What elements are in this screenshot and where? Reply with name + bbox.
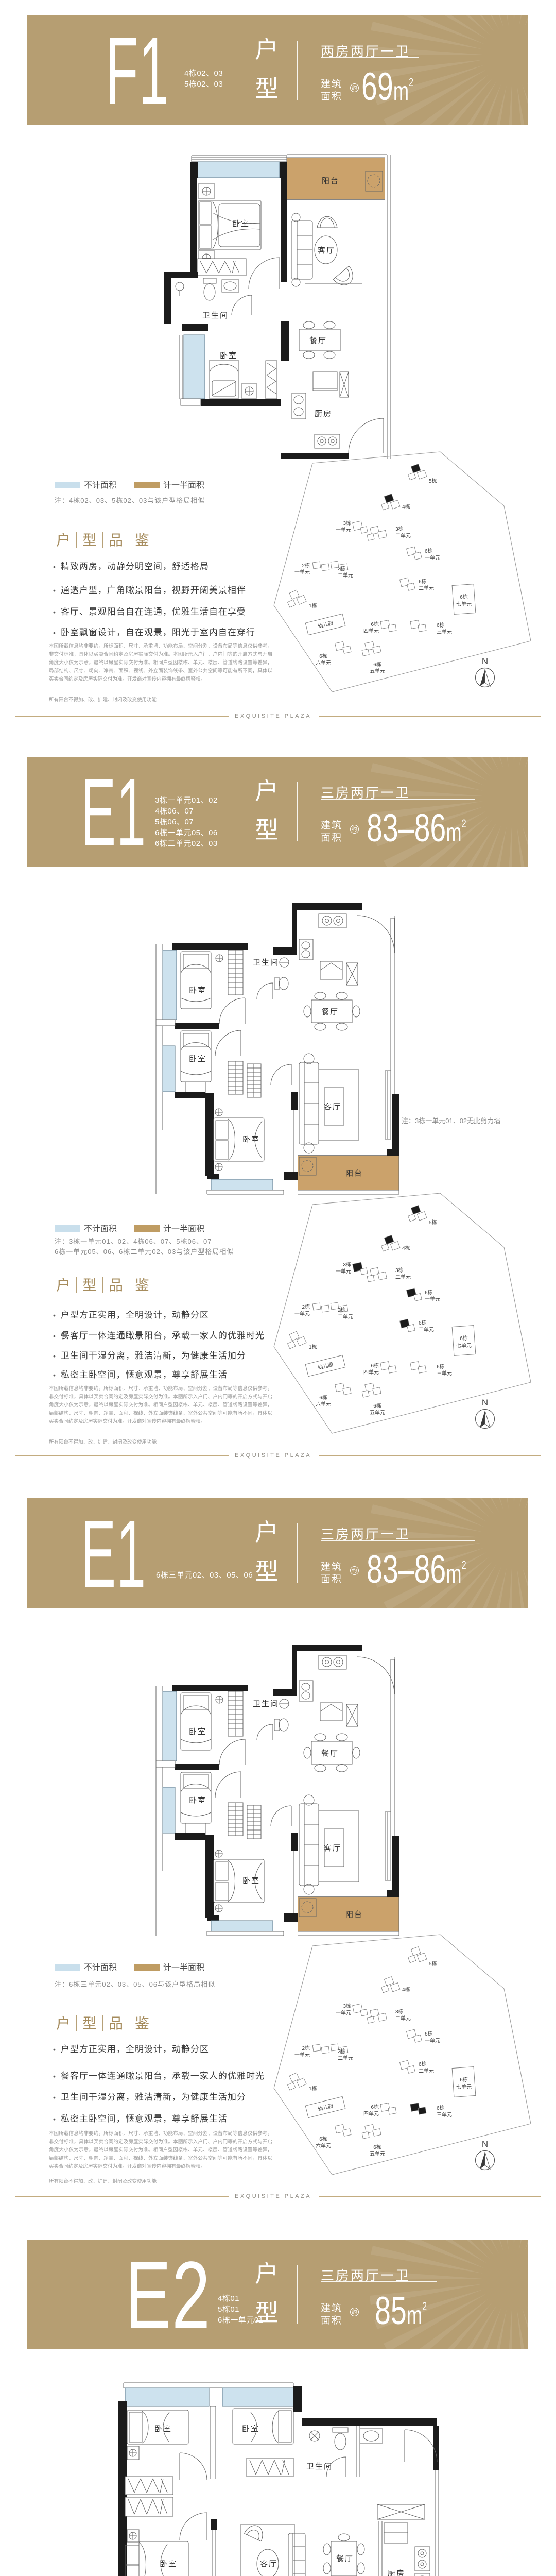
- svg-text:4栋: 4栋: [402, 1986, 410, 1993]
- svg-text:四单元: 四单元: [363, 1369, 379, 1376]
- svg-text:一单元: 一单元: [425, 2038, 440, 2044]
- svg-text:5栋: 5栋: [429, 478, 437, 484]
- svg-text:6栋: 6栋: [371, 621, 379, 628]
- svg-text:卫生间: 卫生间: [306, 2462, 333, 2471]
- svg-text:七单元: 七单元: [456, 601, 472, 607]
- svg-text:厨房: 厨房: [315, 410, 332, 418]
- svg-text:3栋: 3栋: [343, 2003, 351, 2009]
- svg-text:卧室: 卧室: [160, 2560, 177, 2568]
- svg-text:3栋: 3栋: [343, 1261, 351, 1268]
- svg-text:餐厅: 餐厅: [321, 1749, 339, 1758]
- svg-text:六单元: 六单元: [316, 660, 331, 666]
- svg-text:四单元: 四单元: [363, 2111, 379, 2117]
- svg-text:3栋: 3栋: [395, 1267, 404, 1274]
- svg-text:6栋: 6栋: [419, 578, 427, 585]
- svg-text:一单元: 一单元: [336, 1268, 351, 1275]
- svg-text:6栋: 6栋: [437, 1363, 445, 1370]
- svg-text:6栋: 6栋: [419, 1319, 427, 1326]
- svg-text:2栋: 2栋: [302, 1303, 310, 1310]
- svg-text:1栋: 1栋: [309, 1344, 317, 1350]
- svg-text:2栋: 2栋: [338, 2048, 346, 2055]
- svg-text:卫生间: 卫生间: [253, 958, 279, 967]
- svg-text:四单元: 四单元: [363, 628, 379, 634]
- svg-text:二单元: 二单元: [395, 1274, 411, 1280]
- svg-text:6栋: 6栋: [425, 1289, 433, 1296]
- svg-text:三单元: 三单元: [437, 629, 452, 635]
- svg-text:N: N: [482, 2139, 488, 2149]
- svg-text:二单元: 二单元: [338, 572, 353, 579]
- svg-text:一单元: 一单元: [425, 1296, 440, 1302]
- svg-text:阳台: 阳台: [345, 1169, 363, 1178]
- svg-text:4栋: 4栋: [402, 503, 410, 510]
- svg-text:一单元: 一单元: [336, 2010, 351, 2016]
- svg-text:5栋: 5栋: [429, 1960, 437, 1967]
- svg-text:6栋: 6栋: [371, 1362, 379, 1369]
- svg-text:6栋: 6栋: [460, 1335, 468, 1342]
- svg-text:6栋: 6栋: [319, 653, 327, 659]
- svg-text:6栋: 6栋: [373, 1402, 381, 1409]
- svg-text:N: N: [482, 656, 488, 666]
- svg-text:五单元: 五单元: [370, 668, 385, 674]
- svg-text:卧室: 卧室: [189, 986, 206, 995]
- svg-text:餐厅: 餐厅: [309, 336, 327, 345]
- svg-text:客厅: 客厅: [324, 1844, 341, 1853]
- svg-text:客厅: 客厅: [324, 1103, 341, 1111]
- svg-text:二单元: 二单元: [419, 2068, 434, 2074]
- svg-text:七单元: 七单元: [456, 2084, 472, 2090]
- svg-text:一单元: 一单元: [294, 1311, 310, 1317]
- svg-text:阳台: 阳台: [322, 177, 339, 185]
- svg-text:二单元: 二单元: [395, 533, 411, 539]
- svg-text:6栋: 6栋: [371, 2104, 379, 2110]
- svg-text:卧室: 卧室: [242, 1135, 260, 1144]
- svg-text:六单元: 六单元: [316, 1401, 331, 1408]
- svg-text:3栋: 3栋: [395, 526, 404, 532]
- svg-text:6栋: 6栋: [460, 2076, 468, 2083]
- svg-text:二单元: 二单元: [338, 2055, 353, 2061]
- svg-text:卫生间: 卫生间: [253, 1700, 279, 1708]
- svg-text:5栋: 5栋: [429, 1219, 437, 1226]
- svg-text:6栋: 6栋: [437, 622, 445, 629]
- svg-text:三单元: 三单元: [437, 2112, 452, 2118]
- svg-text:6栋: 6栋: [437, 2105, 445, 2111]
- svg-text:餐厅: 餐厅: [336, 2554, 354, 2563]
- svg-text:6栋: 6栋: [425, 548, 433, 554]
- svg-text:卫生间: 卫生间: [202, 311, 229, 320]
- svg-text:3栋: 3栋: [343, 520, 351, 527]
- svg-text:6栋: 6栋: [319, 1394, 327, 1401]
- svg-text:五单元: 五单元: [370, 2151, 385, 2157]
- svg-text:二单元: 二单元: [338, 1314, 353, 1320]
- svg-text:卧室: 卧室: [242, 1876, 260, 1885]
- svg-text:一单元: 一单元: [336, 527, 351, 533]
- svg-text:五单元: 五单元: [370, 1410, 385, 1416]
- svg-text:二单元: 二单元: [419, 585, 434, 591]
- svg-text:3栋: 3栋: [395, 2008, 404, 2015]
- svg-text:卧室: 卧室: [232, 219, 250, 228]
- svg-text:6栋: 6栋: [319, 2136, 327, 2142]
- svg-text:餐厅: 餐厅: [321, 1008, 339, 1016]
- svg-text:卧室: 卧室: [220, 351, 237, 360]
- svg-text:三单元: 三单元: [437, 1370, 452, 1377]
- svg-text:6栋: 6栋: [419, 2061, 427, 2067]
- svg-text:二单元: 二单元: [395, 2015, 411, 2022]
- svg-text:1栋: 1栋: [309, 602, 317, 609]
- svg-text:七单元: 七单元: [456, 1343, 472, 1349]
- svg-text:一单元: 一单元: [294, 2052, 310, 2058]
- svg-text:4栋: 4栋: [402, 1245, 410, 1251]
- svg-text:2栋: 2栋: [302, 2045, 310, 2052]
- svg-text:6栋: 6栋: [425, 2030, 433, 2037]
- svg-text:一单元: 一单元: [294, 569, 310, 575]
- svg-text:客厅: 客厅: [318, 246, 335, 255]
- svg-text:一单元: 一单元: [425, 555, 440, 561]
- svg-text:厨房: 厨房: [388, 2569, 405, 2576]
- svg-text:6栋: 6栋: [373, 2144, 381, 2150]
- svg-text:6栋: 6栋: [460, 594, 468, 600]
- svg-text:2栋: 2栋: [302, 562, 310, 569]
- svg-text:客厅: 客厅: [260, 2560, 277, 2568]
- svg-text:六单元: 六单元: [316, 2143, 331, 2149]
- svg-text:卧室: 卧室: [189, 1727, 206, 1736]
- svg-text:阳台: 阳台: [345, 1910, 363, 1919]
- svg-text:卧室: 卧室: [189, 1796, 206, 1805]
- svg-text:二单元: 二单元: [419, 1327, 434, 1333]
- svg-text:卧室: 卧室: [189, 1055, 206, 1063]
- svg-text:N: N: [482, 1398, 488, 1408]
- svg-text:2栋: 2栋: [338, 1307, 346, 1313]
- svg-text:1栋: 1栋: [309, 2085, 317, 2092]
- svg-text:2栋: 2栋: [338, 565, 346, 572]
- svg-text:6栋: 6栋: [373, 661, 381, 668]
